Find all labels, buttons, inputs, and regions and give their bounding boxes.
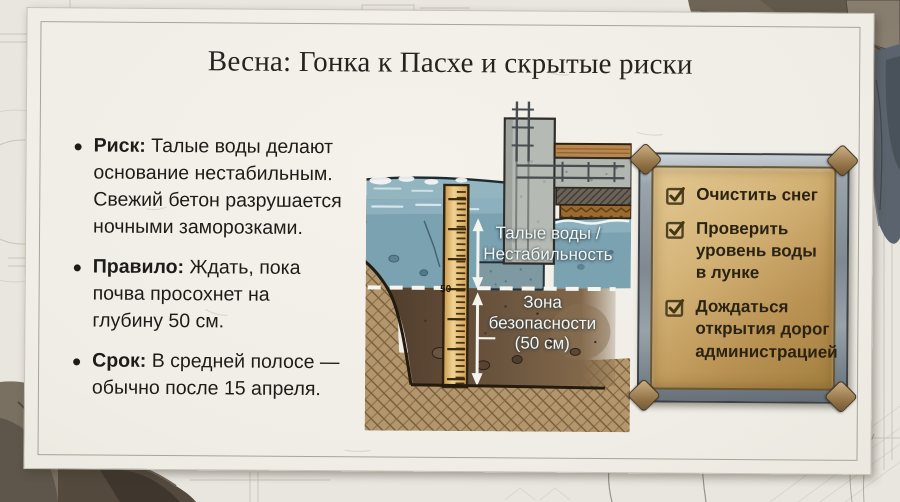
slide-card: Весна: Гонка к Пасхе и скрытые риски Рис… [23,7,874,475]
ruler-50-mark: 50 [440,284,452,295]
bullet-item-rule: Правило: Ждать, пока почва просохнет на … [70,253,371,336]
concrete-footing [478,262,544,289]
checklist-item-label: Очистить снег [696,184,818,207]
checkbox-checked-icon [665,185,686,206]
checklist-item: Дождаться открытия дорог администрацией [664,296,825,363]
slide-canvas: Весна: Гонка к Пасхе и скрытые риски Рис… [0,0,900,502]
checklist-item-label: Проверить уровень воды в лунке [696,218,817,285]
bullet-lead: Срок: [92,350,146,372]
bullet-item-term: Срок: В средней полосе — обычно после 15… [70,347,370,403]
checklist-item: Очистить снег [665,184,826,207]
bullet-item-risk: Риск: Талые воды делают основание нестаб… [71,132,372,242]
bullet-lead: Правило: [93,256,184,279]
measuring-ruler: 50 [439,185,468,387]
surface-water-snow [366,175,504,200]
checklist-board-face: Очистить снег Проверить уровень воды в л… [650,165,837,390]
safety-zone-label: Зона безопасности (50 см) [467,292,617,355]
foundation-cross-section-diagram: 50 [365,100,632,432]
water-instability-label: Талые воды / Нестабильность [473,223,623,266]
page-title: Весна: Гонка к Пасхе и скрытые риски [27,44,873,83]
bullet-lead: Риск: [94,135,146,157]
checklist-board: Очистить снег Проверить уровень воды в л… [637,152,850,403]
bullet-list: Риск: Талые воды делают основание нестаб… [70,132,372,416]
checkbox-checked-icon [665,219,686,240]
checklist-item-label: Дождаться открытия дорог администрацией [695,296,838,363]
checkbox-checked-icon [664,297,685,318]
checklist-item: Проверить уровень воды в лунке [665,218,826,285]
